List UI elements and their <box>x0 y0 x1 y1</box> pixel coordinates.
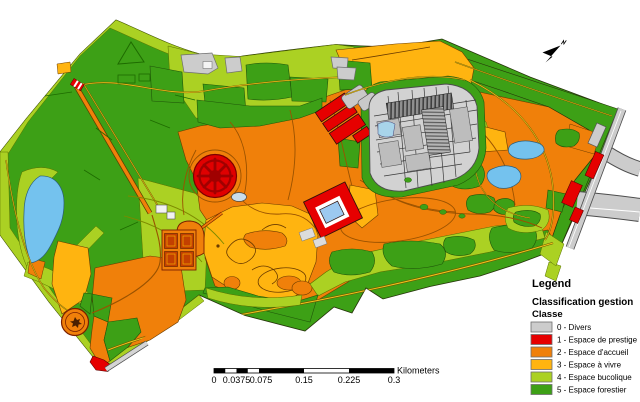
svg-text:0.0375: 0.0375 <box>223 375 251 385</box>
svg-text:0.3: 0.3 <box>388 375 401 385</box>
svg-text:4 - Espace bucolique: 4 - Espace bucolique <box>557 373 632 382</box>
svg-text:0: 0 <box>211 375 216 385</box>
svg-text:5 - Espace forestier: 5 - Espace forestier <box>557 386 627 395</box>
svg-text:0 - Divers: 0 - Divers <box>557 323 591 332</box>
svg-text:Classe: Classe <box>532 309 563 320</box>
svg-text:3 - Espace à vivre: 3 - Espace à vivre <box>557 361 622 370</box>
svg-text:Legend: Legend <box>532 278 571 290</box>
svg-text:0.15: 0.15 <box>295 375 313 385</box>
svg-text:Kilometers: Kilometers <box>397 366 440 376</box>
svg-text:0.075: 0.075 <box>250 375 273 385</box>
svg-text:2 - Espace d'accueil: 2 - Espace d'accueil <box>557 348 629 357</box>
svg-text:1 - Espace de prestige: 1 - Espace de prestige <box>557 336 638 345</box>
svg-text:Classification gestion: Classification gestion <box>532 297 633 308</box>
svg-text:0.225: 0.225 <box>338 375 361 385</box>
